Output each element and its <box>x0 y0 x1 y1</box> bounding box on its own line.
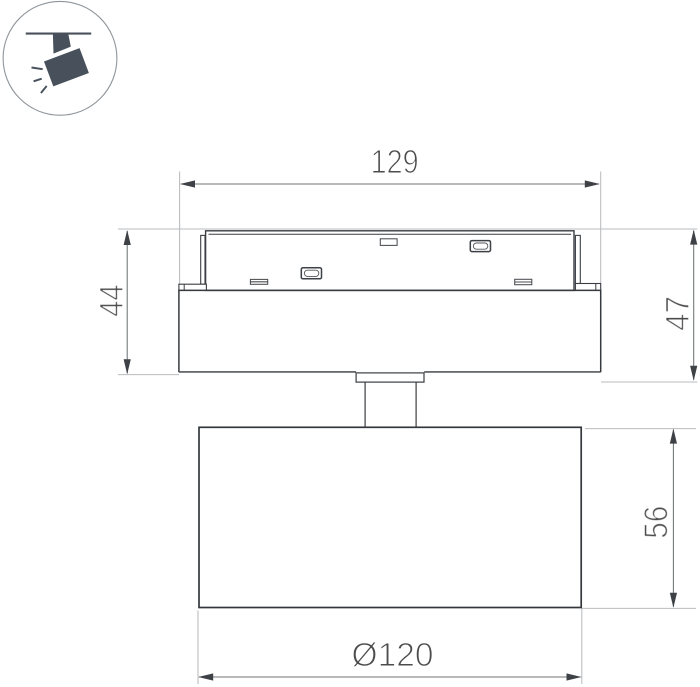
svg-text:47: 47 <box>659 296 696 331</box>
svg-text:129: 129 <box>371 143 419 180</box>
svg-text:Ø120: Ø120 <box>352 636 434 673</box>
svg-text:44: 44 <box>93 284 130 317</box>
svg-text:56: 56 <box>637 506 674 539</box>
